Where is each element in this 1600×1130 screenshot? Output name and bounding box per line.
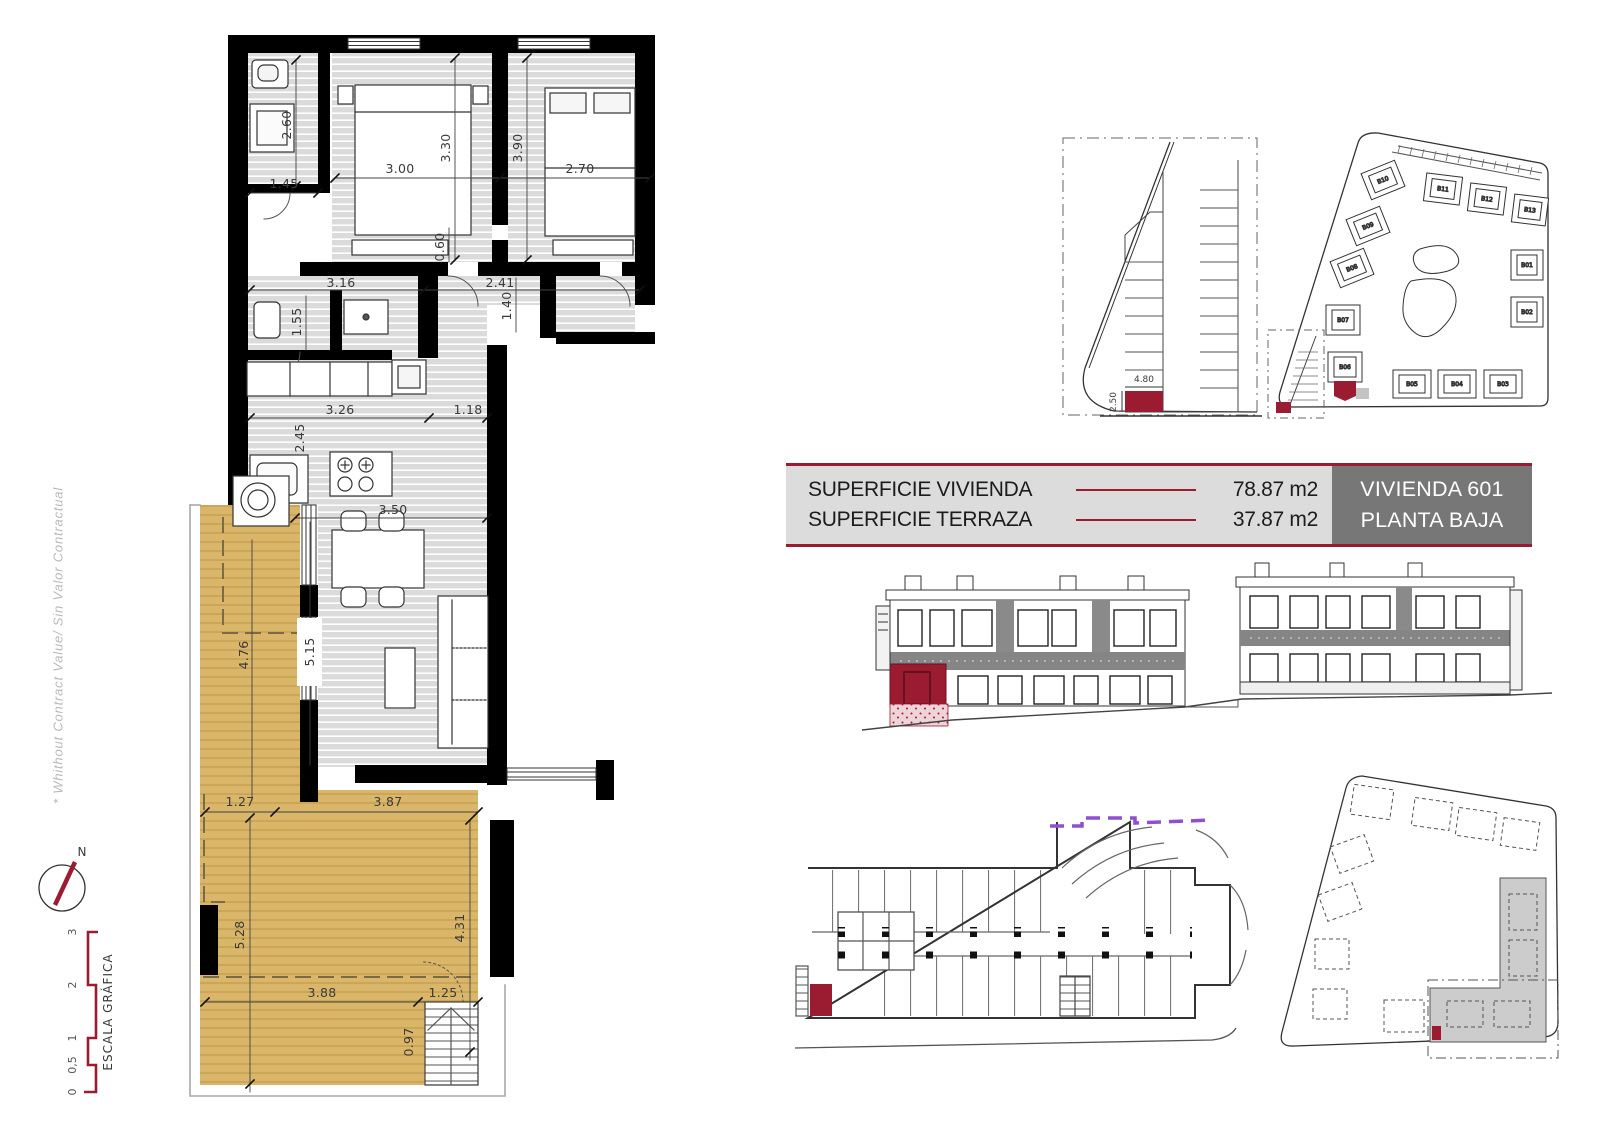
dim-ter-a: 1.27 bbox=[225, 794, 254, 809]
building-label-b02: B02 bbox=[1521, 309, 1533, 316]
dim-living-h: 5.15 bbox=[302, 637, 317, 666]
floor-title: PLANTA BAJA bbox=[1361, 508, 1504, 533]
scale-title: ESCALA GRÁFICA bbox=[100, 953, 115, 1070]
highlighted-unit-site bbox=[1334, 381, 1356, 401]
parking-detail-plan: 4.80 2.50 bbox=[1063, 138, 1262, 416]
main-floor-plan: 2.60 1.45 3.00 3.30 2.70 3.90 0.60 3.16 … bbox=[190, 35, 655, 1096]
surface-panel: SUPERFICIE VIVIENDA 78.87 m2 SUPERFICIE … bbox=[786, 466, 1332, 544]
dim-ter-d: 1.25 bbox=[428, 985, 457, 1000]
disclaimer-note: * Whithout Contract Value/ Sin Valor Con… bbox=[51, 476, 66, 816]
highlighted-parking-stall bbox=[1125, 391, 1163, 412]
elevation-right-building bbox=[1236, 563, 1522, 694]
site-plan-bottom bbox=[1281, 776, 1558, 1058]
highlighted-unit-bottom-site bbox=[1432, 1026, 1441, 1040]
coffee-table bbox=[385, 648, 415, 708]
building-label-b11: B11 bbox=[1437, 185, 1450, 193]
dim-bath-w: 1.45 bbox=[269, 176, 298, 191]
dim-ter-e: 0.97 bbox=[401, 1027, 416, 1056]
sofa bbox=[438, 596, 488, 748]
building-label-b03: B03 bbox=[1497, 381, 1509, 388]
garage-plan bbox=[795, 818, 1248, 1048]
bed-1 bbox=[355, 85, 471, 235]
leader-line bbox=[1076, 519, 1196, 521]
unit-title: VIVIENDA 601 bbox=[1360, 477, 1503, 502]
info-table: SUPERFICIE VIVIENDA 78.87 m2 SUPERFICIE … bbox=[786, 463, 1532, 547]
garage-highlighted-stall bbox=[810, 984, 832, 1016]
parking-dim-width: 4.80 bbox=[1134, 375, 1154, 385]
compass: N bbox=[39, 845, 86, 911]
dim-kitchen-a: 3.26 bbox=[325, 402, 354, 417]
site-plan-top: B10 B11 B12 B13 B09 B08 B07 B06 B05 B04 … bbox=[1268, 133, 1549, 418]
building-label-b12: B12 bbox=[1481, 195, 1494, 203]
surface-value: 37.87 m2 bbox=[1214, 508, 1318, 532]
dim-bed1-h: 3.30 bbox=[438, 133, 453, 162]
building-label-b05: B05 bbox=[1406, 381, 1418, 388]
dim-hall-a: 3.16 bbox=[326, 275, 355, 290]
dim-bed1-w: 3.00 bbox=[385, 161, 414, 176]
stone-base bbox=[890, 704, 948, 726]
surface-label: SUPERFICIE VIVIENDA bbox=[808, 478, 1070, 502]
chair bbox=[341, 511, 366, 531]
wardrobe-2 bbox=[553, 240, 633, 255]
unit-title-block: VIVIENDA 601 PLANTA BAJA bbox=[1332, 466, 1532, 544]
graphic-scale: 0 0,5 1 2 3 ESCALA GRÁFICA bbox=[66, 929, 115, 1096]
kitchen-counter bbox=[247, 362, 392, 396]
pool-small bbox=[1413, 246, 1458, 274]
elevations bbox=[862, 563, 1552, 730]
surface-label: SUPERFICIE TERRAZA bbox=[808, 508, 1070, 532]
dim-bed2-w: 2.70 bbox=[565, 161, 594, 176]
parking-inset-stall bbox=[1276, 402, 1291, 413]
surface-value: 78.87 m2 bbox=[1214, 478, 1318, 502]
architectural-sheet: N 0 0,5 1 2 3 ESCALA GRÁFICA bbox=[0, 0, 1600, 1130]
chair bbox=[341, 587, 366, 607]
parking-dim-depth: 2.50 bbox=[1109, 392, 1119, 412]
elevation-left-building bbox=[876, 576, 1189, 726]
dim-bed2-h: 3.90 bbox=[510, 133, 525, 162]
building-label-b13: B13 bbox=[1524, 206, 1537, 214]
leader-line bbox=[1076, 489, 1196, 491]
scale-tick-05: 0,5 bbox=[66, 1056, 79, 1074]
surface-row-terraza: SUPERFICIE TERRAZA 37.87 m2 bbox=[808, 508, 1318, 532]
building-label-b07: B07 bbox=[1337, 317, 1349, 324]
garage-stairs bbox=[1060, 976, 1090, 1016]
dining-table bbox=[332, 530, 424, 588]
drawing-canvas: N 0 0,5 1 2 3 ESCALA GRÁFICA bbox=[0, 0, 1600, 1130]
chair bbox=[379, 587, 404, 607]
dim-living-w: 3.50 bbox=[378, 502, 407, 517]
dim-bath-h: 2.60 bbox=[279, 110, 294, 139]
highlighted-unit-elevation bbox=[890, 664, 946, 704]
dim-kitchen-h: 2.45 bbox=[292, 423, 307, 452]
dim-ter-right: 4.31 bbox=[452, 913, 467, 942]
parking-inset bbox=[1268, 330, 1324, 418]
scale-tick-1: 1 bbox=[66, 1035, 79, 1042]
dim-hall-b: 2.41 bbox=[485, 275, 514, 290]
surface-row-vivienda: SUPERFICIE VIVIENDA 78.87 m2 bbox=[808, 478, 1318, 502]
dim-pass-h: 1.40 bbox=[499, 291, 514, 320]
scale-tick-0: 0 bbox=[66, 1089, 79, 1096]
dim-ter-b: 3.87 bbox=[373, 794, 402, 809]
building-label-b01: B01 bbox=[1521, 262, 1533, 269]
compass-north-label: N bbox=[78, 845, 87, 859]
dim-ter-c: 3.88 bbox=[307, 985, 336, 1000]
dim-kitchen-b: 1.18 bbox=[453, 402, 482, 417]
dim-terrace-side: 4.76 bbox=[236, 640, 251, 669]
garage-ground-line bbox=[795, 1028, 1236, 1048]
toilet-2 bbox=[254, 302, 280, 338]
building-label-b04: B04 bbox=[1451, 381, 1463, 388]
pool-large bbox=[1403, 279, 1456, 337]
dim-aseo-h: 1.55 bbox=[289, 307, 304, 336]
scale-tick-2: 2 bbox=[66, 982, 79, 989]
scale-tick-3: 3 bbox=[66, 929, 79, 936]
dim-wardrobe: 0.60 bbox=[432, 232, 447, 261]
dim-ter-left: 5.28 bbox=[232, 920, 247, 949]
building-label-b06: B06 bbox=[1339, 364, 1351, 371]
